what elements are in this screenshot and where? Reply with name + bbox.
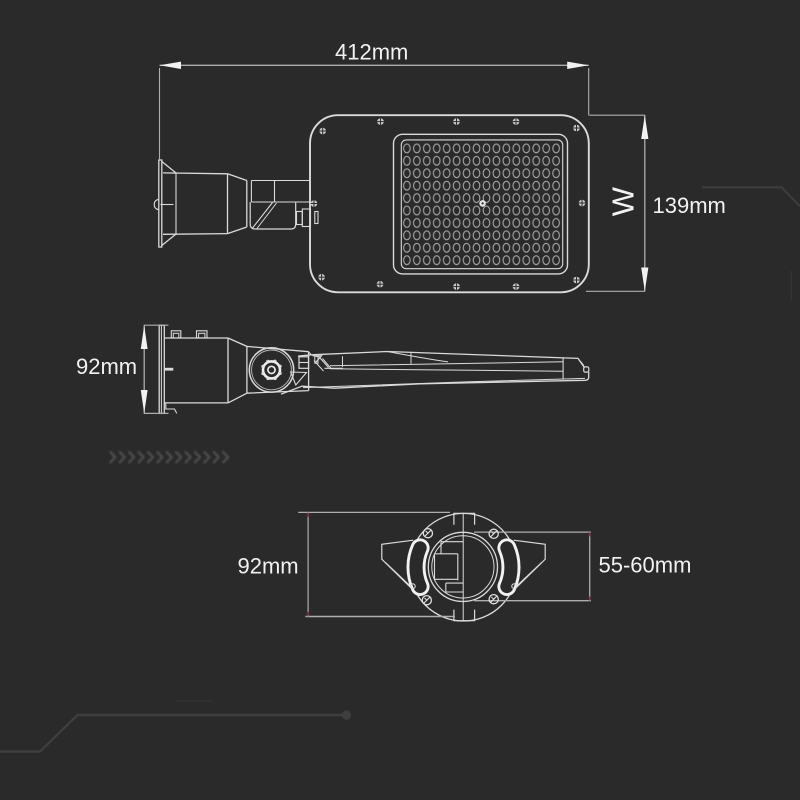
svg-text:139mm: 139mm [653,193,726,218]
svg-text:92mm: 92mm [76,354,137,379]
svg-text:92mm: 92mm [238,554,299,579]
svg-text:412mm: 412mm [335,40,408,65]
svg-text:55-60mm: 55-60mm [599,553,692,578]
svg-text:W: W [606,186,641,216]
